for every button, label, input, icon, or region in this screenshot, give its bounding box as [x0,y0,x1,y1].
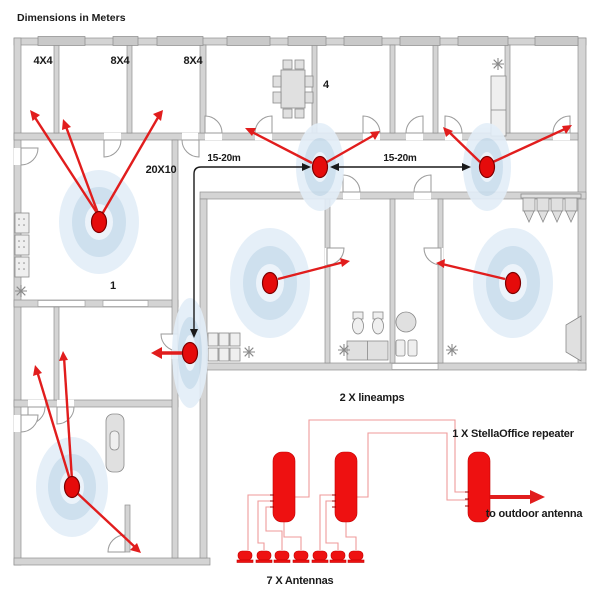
shelf-units-mid [208,333,240,361]
snowflake-icon [446,344,458,356]
snowflake-icon [338,344,350,356]
snowflake-icon [243,346,255,358]
washroom-fixtures [396,312,417,356]
schematic-antennas [237,551,364,563]
equipment-schematic: 2 X lineamps 1 X StellaOffice repeater t… [237,392,583,587]
antenna-dot [183,343,198,364]
cabinet [106,414,124,472]
antenna-dot [480,157,495,178]
lineamps-label: 2 X lineamps [340,392,405,404]
distance-label-left: 15-20m [207,153,241,164]
schematic-antenna [274,551,290,563]
room-label-4x4: 4X4 [34,55,54,67]
room-label-8x4-a: 8X4 [111,55,131,67]
outdoor-label: to outdoor antenna [486,508,584,520]
antenna-dot [506,273,521,294]
schematic-antenna [256,551,272,563]
antenna-dot [65,477,80,498]
meeting-table [273,60,313,118]
room-label-8x4-b: 8X4 [184,55,204,67]
diagram-canvas: Dimensions in Meters 4X4 8X4 8X4 4 20X10… [0,0,600,600]
outdoor-antenna-arrow [490,490,545,504]
snowflake-icon [15,285,27,297]
schematic-antenna [237,551,253,563]
antenna-dot [92,212,107,233]
bathroom-fixtures [347,312,388,360]
schematic-antenna [312,551,328,563]
room-label-20x10: 20X10 [146,164,177,176]
antennas-label: 7 X Antennas [267,575,334,587]
room-label-1: 1 [110,280,116,292]
floorplan-diagram: Dimensions in Meters 4X4 8X4 8X4 4 20X10… [0,0,600,600]
schematic-antenna [293,551,309,563]
shelf-units-left [15,213,29,277]
schematic-antenna [348,551,364,563]
kitchen-units [521,194,581,222]
room-label-4: 4 [323,79,330,91]
lineamp-1 [270,452,295,522]
schematic-antenna [330,551,346,563]
repeater-label: 1 X StellaOffice repeater [452,428,574,440]
antenna-dot [263,273,278,294]
corner-object [566,316,581,361]
lineamp-2 [332,452,357,522]
distance-label-right: 15-20m [383,153,417,164]
snowflake-icon [492,58,504,70]
antenna-dot [313,157,328,178]
page-title: Dimensions in Meters [17,12,126,24]
